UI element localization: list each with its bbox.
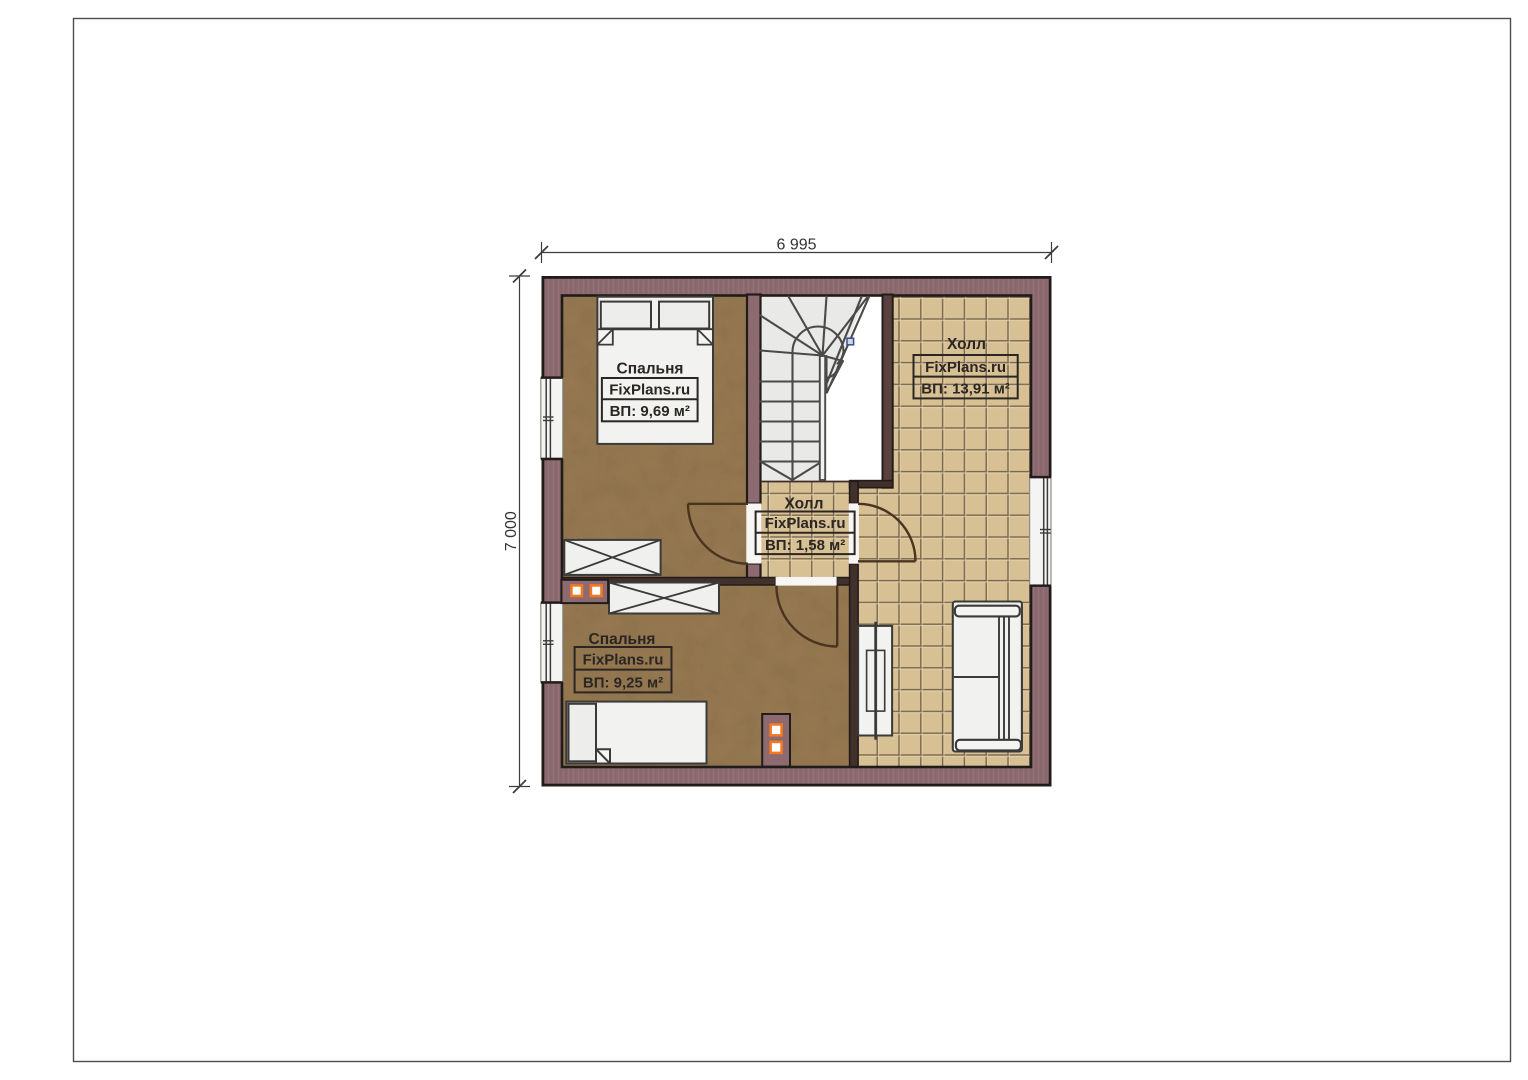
svg-text:FixPlans.ru: FixPlans.ru xyxy=(925,359,1006,376)
svg-text:Холл: Холл xyxy=(947,336,986,353)
svg-text:ВП: 9,25 м²: ВП: 9,25 м² xyxy=(583,674,663,691)
svg-text:Холл: Холл xyxy=(785,495,824,512)
svg-text:ВП: 9,69 м²: ВП: 9,69 м² xyxy=(610,403,690,420)
svg-text:FixPlans.ru: FixPlans.ru xyxy=(609,382,690,399)
svg-text:Спальня: Спальня xyxy=(589,631,656,648)
svg-text:FixPlans.ru: FixPlans.ru xyxy=(765,515,846,532)
svg-text:7 000: 7 000 xyxy=(503,511,520,551)
svg-text:6 995: 6 995 xyxy=(776,237,816,254)
svg-text:FixPlans.ru: FixPlans.ru xyxy=(583,652,664,669)
svg-text:ВП: 1,58 м²: ВП: 1,58 м² xyxy=(765,537,845,554)
svg-text:ВП: 13,91 м²: ВП: 13,91 м² xyxy=(921,381,1010,398)
svg-text:Спальня: Спальня xyxy=(617,361,684,378)
